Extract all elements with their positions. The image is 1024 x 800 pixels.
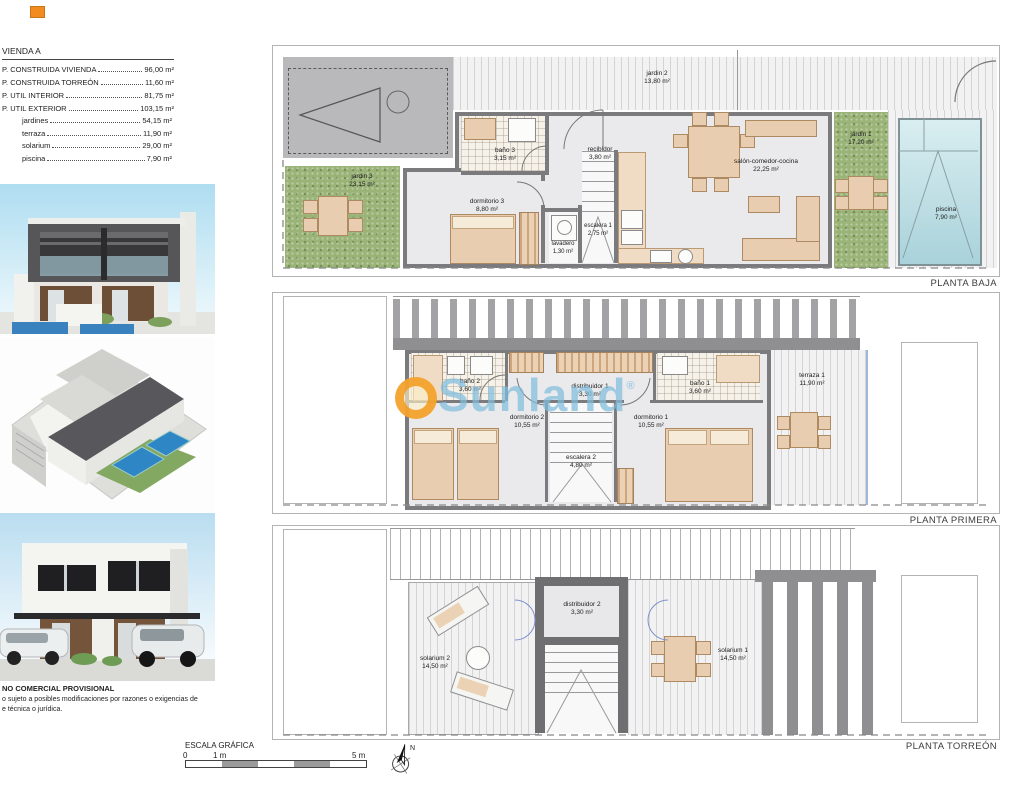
dining-table [688,126,740,178]
wall [545,116,549,175]
area-subrow-value: 54,15 m² [142,115,172,128]
jardin2-deck [453,57,997,110]
area-row-label: P. CONSTRUIDA TORREÓN [2,76,99,89]
room-label-distribuidor2: distribuidor 23,30 m² [563,601,600,618]
room-label-escalera2: escalera 24,80 m² [566,454,596,471]
plan-title-planta-baja: PLANTA BAJA [777,278,997,289]
dotted-leader [47,135,141,136]
chair [348,218,363,232]
dotted-leader [50,122,140,123]
shower [716,355,760,383]
pergola-rail [393,296,860,297]
chair [777,435,790,449]
scale-tick-5m: 5 m [352,751,365,760]
coffee-table [748,196,780,213]
void-left [283,529,387,735]
pergola-beam [755,570,876,582]
room-label-solarium2: solarium 214,50 m² [420,655,450,672]
room-label-jardin2: jardin 213,80 m² [644,70,670,87]
area-subrow-value: 7,90 m² [147,153,172,166]
area-subrow-value: 29,00 m² [142,140,172,153]
area-row-label: P. UTIL INTERIOR [2,89,64,102]
disclaimer-title: NO COMERCIAL PROVISIONAL [2,684,217,695]
dotted-leader [98,71,142,72]
garden-table [318,196,348,236]
pool [898,118,982,266]
room-label-lavadero: lavadero1,30 m² [551,241,574,257]
wall [578,205,582,263]
oven [650,250,672,263]
chair [692,112,707,126]
room-label-salon: salón-comedor-cocina22,25 m² [734,158,798,175]
area-row: P. UTIL EXTERIOR 103,15 m² [2,102,174,115]
banio1-sink [662,356,688,375]
pillow [459,430,497,444]
north-label: N [410,745,415,752]
scale-bar [185,760,367,768]
area-subrow-label: jardines [22,115,48,128]
watermark-logo-ring [395,377,437,419]
room-label-escalera1: escalera 12,75 m² [584,223,612,239]
area-row: P. CONSTRUIDA TORREÓN 11,60 m² [2,76,174,89]
area-subrow: terraza 11,90 m² [22,128,172,141]
scale-segment [186,761,222,767]
chair [714,178,729,192]
area-subrow: jardines 54,15 m² [22,115,172,128]
area-subrow-label: terraza [22,128,45,141]
wall [650,400,763,403]
sofa [796,196,820,242]
room-label-piscina: piscina7,90 m² [935,206,957,223]
pillow [710,430,749,445]
chair [818,435,831,449]
stair3-lower [545,693,618,733]
pergola-slats [393,299,860,339]
scale-segment [222,761,258,767]
area-row: P. CONSTRUIDA VIVIENDA 96,00 m² [2,63,174,76]
carport [283,57,453,158]
chair [303,218,318,232]
render-aerial-view [0,337,215,512]
sideboard [745,120,817,137]
disclaimer-line: e técnica o jurídica. [2,705,217,715]
stair-wall [535,645,545,733]
chair [873,196,888,210]
plot-divider [737,50,738,110]
chair [714,112,729,126]
disclaimer-line: o sujeto a posibles modificaciones por r… [2,695,217,705]
chair [873,179,888,193]
chair [673,134,688,148]
room-label-jardin1: jardin 117,20 m² [848,131,874,148]
scale-bar-title: ESCALA GRÁFICA [185,741,254,750]
chair [696,663,711,677]
area-table: VIENDA A P. CONSTRUIDA VIVIENDA 96,00 m²… [2,46,180,165]
dotted-leader [101,84,143,85]
round-table [466,646,490,670]
wardrobe [519,212,539,265]
stair-wall [618,645,628,733]
banio3-vanity [464,118,496,140]
kitchen-hob [621,230,643,245]
dotted-leader [47,160,144,161]
washer [551,215,577,241]
glass-balustrade [866,350,868,505]
scale-tick-1m: 1 m [213,751,226,760]
render-front-elevation [0,184,215,334]
scale-tick-0: 0 [183,751,187,760]
area-row-value: 103,15 m² [140,102,174,115]
room-label-solarium1: solarium 114,50 m² [718,647,748,664]
chair [303,200,318,214]
dotted-leader [69,110,139,111]
chair [348,200,363,214]
pillow [452,216,514,229]
area-row-value: 11,60 m² [145,76,174,89]
void-below-jardin [283,296,387,504]
area-row: P. UTIL INTERIOR 81,75 m² [2,89,174,102]
wall [541,171,545,181]
chair [692,178,707,192]
room-label-dormitorio1: dormitorio 110,55 m² [634,414,668,431]
carport-dashed-outline [288,68,448,154]
banio3-sink [508,118,536,142]
area-subrow-label: piscina [22,153,45,166]
dotted-leader [52,147,140,148]
kitchen-sink [621,210,643,229]
disclaimer: NO COMERCIAL PROVISIONAL o sujeto a posi… [2,684,217,715]
washer-drum [557,220,572,235]
area-subrow-label: solarium [22,140,50,153]
garden-table [848,176,874,210]
terrace-table [790,412,818,448]
room-label-banio3: baño 33,15 m² [494,147,516,164]
floorplan-sheet: VIENDA A P. CONSTRUIDA VIVIENDA 96,00 m²… [0,0,1024,800]
pillow [414,430,452,444]
area-table-title: VIENDA A [2,46,174,60]
void-above-pool [901,342,978,504]
area-row-value: 81,75 m² [144,89,174,102]
chair [777,416,790,430]
wall [541,205,545,263]
render-street-view [0,513,215,681]
pillow [668,430,707,445]
registered-mark-icon: ® [626,380,635,392]
wall [545,208,582,212]
area-subrow-value: 11,90 m² [143,128,172,141]
area-row-value: 96,00 m² [144,63,174,76]
wall [653,352,656,401]
scale-segment [294,761,330,767]
area-subrow: piscina 7,90 m² [22,153,172,166]
area-row-label: P. CONSTRUIDA VIVIENDA [2,63,96,76]
room-label-jardin3: jardin 323,15 m² [349,173,375,190]
void-right [901,575,978,723]
wall [461,171,549,175]
scale-segment [330,761,366,767]
room-label-terraza1: terraza 111,90 m² [799,372,825,389]
dotted-leader [66,97,142,98]
watermark-text: Sunland® [438,368,636,422]
room-label-banio1: baño 13,60 m² [689,380,711,397]
pergola-big-slats [762,582,873,735]
wardrobe [617,468,634,504]
top-wall-band [393,338,860,350]
room-label-dormitorio3: dormitorio 38,80 m² [470,198,504,215]
room-label-recibidor: recibidor3,80 m² [588,146,613,163]
scale-segment [258,761,294,767]
stair3-treads [545,645,618,693]
chair [818,416,831,430]
orange-marker [30,6,45,18]
solarium-table [664,636,696,682]
north-compass-icon: N [386,738,422,780]
round-sink [678,249,693,264]
plan-title-planta-primera: PLANTA PRIMERA [777,515,997,526]
area-subrow: solarium 29,00 m² [22,140,172,153]
lounger-cushion [457,677,489,698]
area-row-label: P. UTIL EXTERIOR [2,102,67,115]
plan-title-planta-torreon: PLANTA TORREÓN [777,741,997,752]
chair [696,641,711,655]
